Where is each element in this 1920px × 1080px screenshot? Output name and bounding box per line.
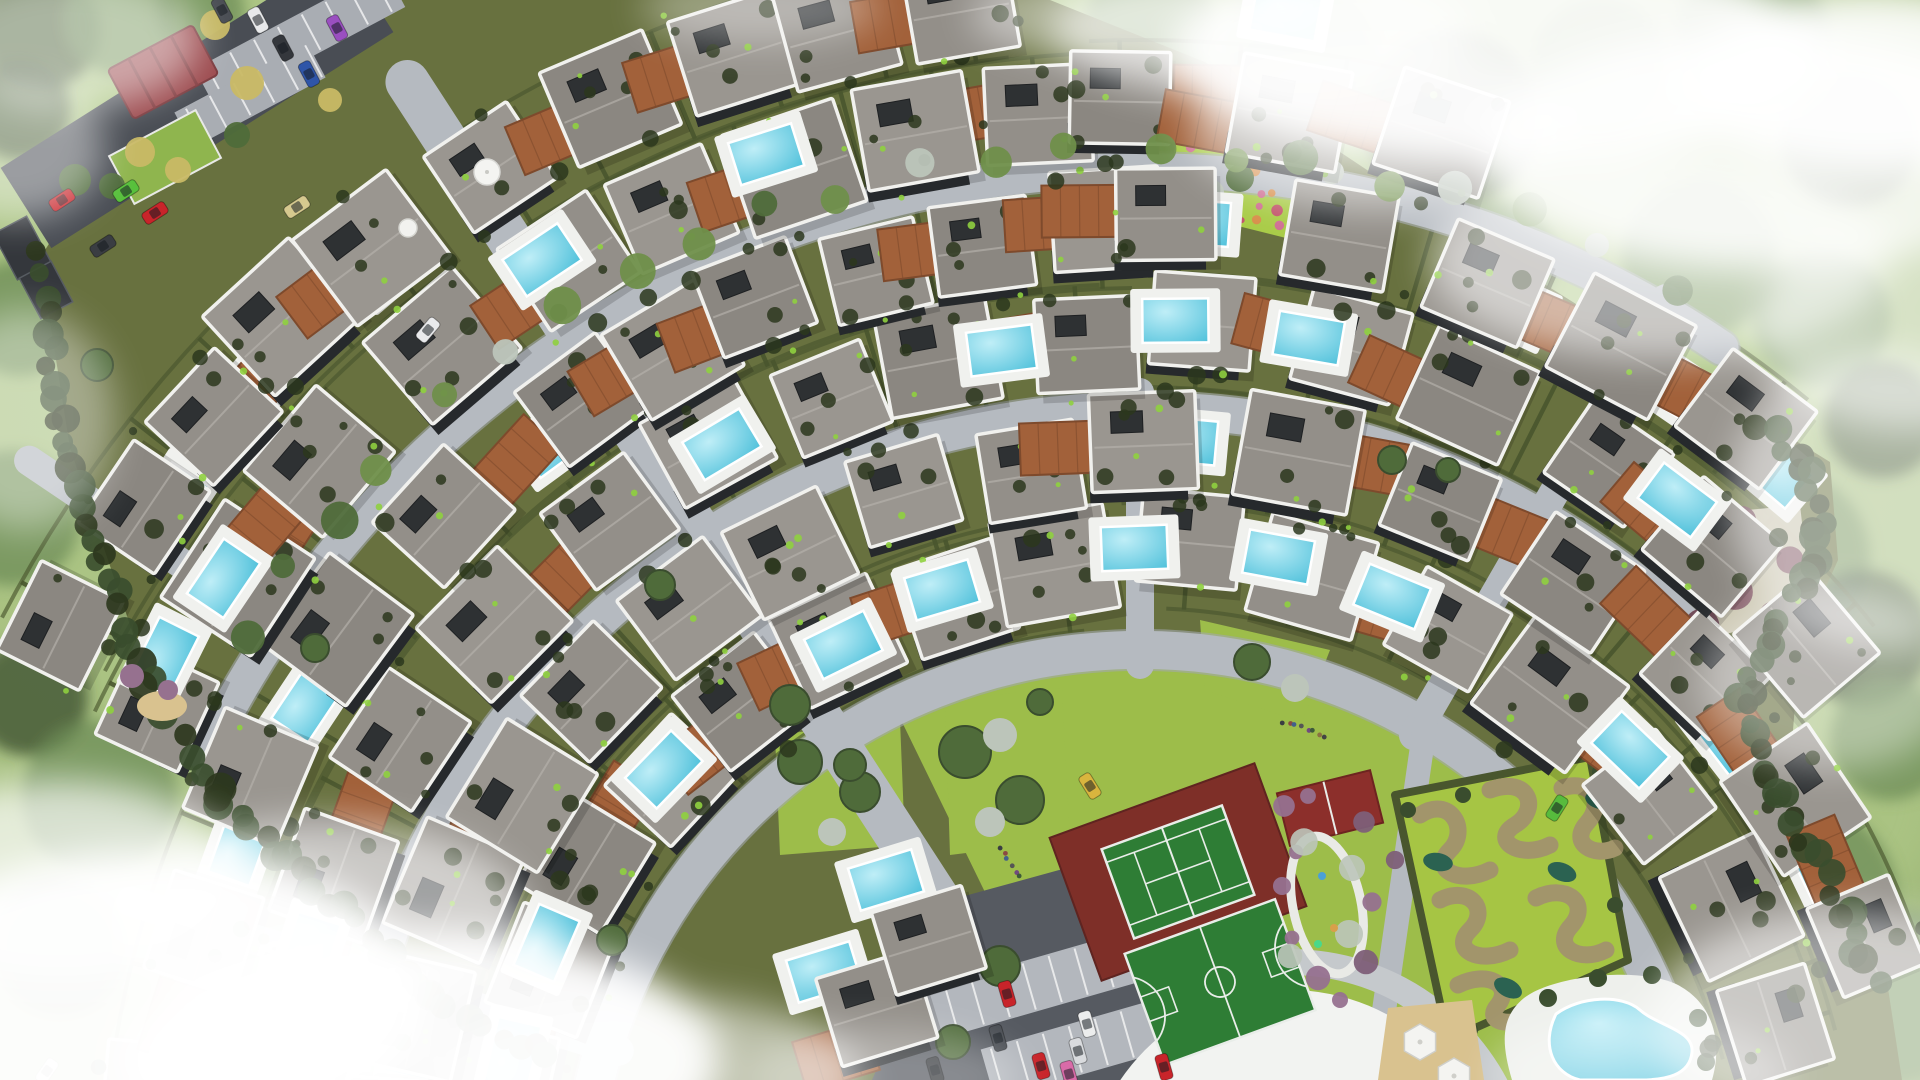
lawn-dot (1541, 577, 1548, 584)
lawn-dot (1589, 470, 1594, 475)
shrub (681, 271, 700, 290)
boundary-hedge (1818, 859, 1845, 886)
lawn-dot (577, 73, 582, 78)
lawn-dot (736, 713, 742, 719)
shrub (598, 265, 607, 274)
lawn-dot (899, 195, 905, 201)
shrub (966, 388, 984, 406)
lawn-dot (597, 244, 603, 250)
lawn-dot (1401, 673, 1408, 680)
lawn-dot (786, 541, 794, 549)
palm-tree (1400, 802, 1416, 818)
shrub (1691, 757, 1708, 774)
masterplan-svg (0, 0, 1920, 1080)
lawn-dot (1219, 370, 1227, 378)
yellow-tree (318, 88, 342, 112)
shrub (1508, 702, 1517, 711)
shrub (1280, 469, 1294, 483)
lawn-dot (898, 512, 905, 519)
shrub (336, 190, 350, 204)
lawn-dot (1370, 278, 1377, 285)
flower-clump (1252, 215, 1261, 224)
lawn-dot (883, 317, 888, 322)
lawn-dot (790, 347, 796, 353)
lawn-dot (1284, 601, 1290, 607)
lawn-dot (722, 648, 728, 654)
shrub (1585, 603, 1594, 612)
boundary-hedge (26, 241, 46, 261)
lawn-dot (1364, 328, 1372, 336)
lawn-dot (1102, 94, 1109, 101)
lawn-dot (1648, 834, 1653, 839)
shrub (674, 195, 684, 205)
shrub (1187, 366, 1206, 385)
shrub (659, 187, 668, 196)
boundary-hedge (93, 542, 116, 565)
shrub (1023, 529, 1041, 547)
shrub (1513, 370, 1529, 386)
shrub (339, 422, 347, 430)
shrub (459, 563, 476, 580)
shrub (723, 662, 732, 671)
umbrella-pole (485, 170, 489, 174)
shrub (954, 260, 964, 270)
boundary-hedge (1819, 885, 1839, 905)
pool-water (1142, 298, 1208, 343)
shrub (1067, 80, 1085, 98)
lawn-dot (365, 700, 372, 707)
shrub (871, 443, 886, 458)
shrub (547, 819, 560, 832)
shrub (1716, 444, 1733, 461)
street-tree (981, 147, 1012, 178)
shrub (232, 338, 244, 350)
gray-roof (1232, 389, 1365, 515)
shrub (821, 393, 836, 408)
shrub (1097, 468, 1114, 485)
site-tree (1436, 458, 1460, 482)
lawn-dot (420, 387, 426, 393)
shrub (309, 808, 320, 819)
house (849, 70, 986, 203)
street-tree (544, 287, 582, 325)
lawn-dot (63, 688, 69, 694)
purple-tree (120, 664, 144, 688)
shrub (206, 371, 221, 386)
roof-ridge (1120, 218, 1212, 219)
shrub (700, 679, 715, 694)
palm-tree (1455, 787, 1471, 803)
gray-roof (1034, 295, 1140, 393)
shrub (147, 575, 156, 584)
shrub (743, 243, 755, 255)
shrub (1036, 65, 1049, 78)
shrub (494, 180, 509, 195)
shrub (1690, 653, 1703, 666)
purple-bush (1300, 788, 1316, 804)
shrub (460, 317, 478, 335)
pedestrian (1004, 856, 1009, 861)
shrub (857, 462, 874, 479)
boundary-hedge (203, 784, 231, 812)
lawn-dot (1197, 584, 1204, 591)
lawn-dot (1113, 210, 1119, 216)
rooftop-unit (1005, 84, 1038, 107)
shrub (544, 515, 559, 530)
wood-deck (1019, 421, 1097, 476)
shrub (421, 790, 430, 799)
lawn-dot (106, 706, 114, 714)
lawn-dot (679, 227, 684, 232)
shrub (319, 486, 335, 502)
house (1228, 389, 1370, 527)
wood-deck (1041, 185, 1117, 238)
shrub (266, 584, 277, 595)
rooftop-unit (950, 218, 982, 241)
lawn-dot (1496, 430, 1501, 435)
shrub (550, 162, 568, 180)
house (1086, 390, 1204, 503)
shrub (1111, 253, 1122, 264)
lawn-dot (1211, 483, 1217, 489)
shrub (844, 76, 857, 89)
shrub (640, 289, 657, 306)
shrub (258, 378, 274, 394)
lawn-dot (1072, 68, 1079, 75)
purple-bush (1353, 811, 1375, 833)
lawn-dot (199, 474, 207, 482)
lawn-dot (462, 174, 469, 181)
site-tree (770, 685, 810, 725)
shrub (467, 784, 483, 800)
pedestrian (998, 846, 1003, 851)
lawn-dot (376, 504, 383, 511)
shrub (208, 691, 223, 706)
house-lot (1034, 295, 1146, 404)
shrub (1614, 813, 1625, 824)
shrub (1495, 741, 1512, 758)
shrub (1775, 845, 1788, 858)
street-tree (905, 148, 934, 177)
masterplan-render: Aerial masterplan render — circular resi… (0, 0, 1920, 1080)
lawn-dot (706, 367, 712, 373)
shrub (1400, 290, 1409, 299)
street-tree (432, 382, 457, 407)
pedestrian (1280, 721, 1285, 726)
pool-water (966, 324, 1037, 376)
shrub (1423, 642, 1441, 660)
shrub (478, 230, 491, 243)
lawn-dot (179, 538, 186, 545)
shrub (556, 701, 574, 719)
shrub (792, 567, 806, 581)
lawn-dot (237, 725, 243, 731)
white-tree (1339, 855, 1365, 881)
street-tree (821, 185, 850, 214)
shrub (1173, 499, 1187, 513)
white-tree (983, 718, 1017, 752)
pedestrian (1017, 874, 1022, 879)
shrub (582, 885, 599, 902)
lawn-dot (1626, 369, 1632, 375)
shrub (395, 657, 404, 666)
shrub (817, 584, 826, 593)
lawn-dot (1468, 340, 1473, 345)
house (1034, 295, 1146, 404)
shrub (1603, 521, 1611, 529)
shrub (681, 405, 691, 415)
site-tree (645, 570, 675, 600)
shrub (382, 612, 392, 622)
lawn-dot (1754, 810, 1759, 815)
shrub (1156, 382, 1173, 399)
purple-bush (1273, 795, 1295, 817)
shrub (590, 480, 605, 495)
shrub (765, 559, 781, 575)
lawn-dot (1564, 694, 1570, 700)
shrub (1065, 529, 1075, 539)
lawn-dot (1017, 292, 1023, 298)
boundary-hedge (1778, 810, 1804, 836)
rooftop-unit (1136, 185, 1166, 205)
lawn-dot (492, 601, 498, 607)
lawn-dot (968, 221, 976, 229)
white-tree (1281, 674, 1309, 702)
lawn-dot (1069, 613, 1077, 621)
shrub (375, 513, 394, 532)
pedestrian (1322, 735, 1327, 740)
pool-water (1101, 525, 1169, 571)
shrub (1329, 524, 1337, 532)
shrub (842, 309, 858, 325)
palm-tree (1589, 969, 1607, 987)
swimming-pool (953, 313, 1051, 388)
lawn-dot (1754, 879, 1760, 885)
shrub (921, 468, 937, 484)
shrub (1671, 676, 1689, 694)
shrub (979, 120, 988, 129)
shrub (800, 50, 813, 63)
lawn-dot (631, 414, 638, 421)
shrub (1451, 536, 1470, 555)
shrub (553, 651, 564, 662)
shrub (369, 218, 379, 228)
purple-bush (1285, 931, 1300, 946)
play-equipment (1318, 872, 1326, 880)
shrub (801, 73, 811, 83)
shrub (706, 44, 720, 58)
lawn-dot (312, 576, 319, 583)
swimming-pool (1088, 514, 1180, 581)
pedestrian (1310, 728, 1315, 733)
umbrella-pole (1418, 1040, 1423, 1045)
yellow-tree (230, 66, 264, 100)
shrub (1346, 532, 1355, 541)
shrub (565, 849, 577, 861)
shrub (360, 766, 371, 777)
pedestrian (1299, 724, 1304, 729)
shrub (287, 378, 304, 395)
flower-clump (1275, 221, 1285, 231)
site-tree (834, 749, 866, 781)
shrub (765, 337, 782, 354)
white-tree (818, 818, 846, 846)
street-tree (360, 455, 392, 487)
lawn-dot (744, 43, 751, 50)
shrub (405, 380, 421, 396)
shrub (996, 297, 1010, 311)
shrub (948, 312, 960, 324)
street-tree (1050, 133, 1077, 160)
lawn-dot (631, 490, 638, 497)
lawn-dot (1408, 485, 1416, 493)
purple-bush (1332, 992, 1348, 1008)
yellow-tree (125, 137, 155, 167)
shrub (1159, 470, 1175, 486)
shrub (947, 631, 957, 641)
swimming-pool (1130, 288, 1221, 353)
shrub (644, 882, 653, 891)
lawn-dot (1689, 787, 1695, 793)
boundary-hedge (1773, 782, 1799, 808)
shrub (416, 707, 425, 716)
shrub (1756, 891, 1776, 911)
shrub (290, 415, 302, 427)
shrub (1431, 511, 1448, 528)
lawn-dot (620, 868, 627, 875)
lawn-dot (1155, 405, 1163, 413)
lawn-dot (1071, 356, 1077, 362)
shrub (908, 115, 921, 128)
play-equipment (1330, 924, 1338, 932)
lawn-dot (690, 615, 697, 622)
shrub (900, 344, 912, 356)
shrub (254, 351, 265, 362)
lawn-dot (601, 740, 608, 747)
shrub (844, 681, 854, 691)
lawn-dot (1404, 494, 1411, 501)
site-tree (301, 634, 329, 662)
lawn-dot (941, 58, 947, 64)
lawn-dot (546, 848, 552, 854)
shrub (1536, 640, 1550, 654)
shrub (1709, 901, 1725, 917)
lawn-dot (553, 784, 560, 791)
palm-tree (1539, 989, 1557, 1007)
site-tree (1378, 446, 1406, 474)
lawn-dot (436, 512, 443, 519)
shrub (843, 448, 852, 457)
shrub (373, 634, 384, 645)
shrub (475, 108, 488, 121)
boundary-hedge (30, 263, 49, 282)
purple-bush (1386, 851, 1404, 869)
boundary-hedge (106, 593, 128, 615)
lawn-dot (289, 405, 294, 410)
lawn-dot (1294, 496, 1300, 502)
shrub (1109, 154, 1124, 169)
lawn-dot (833, 434, 838, 439)
lawn-dot (572, 123, 578, 129)
lawn-dot (381, 277, 387, 283)
shrub (1576, 573, 1594, 591)
shrub (584, 86, 596, 98)
lawn-dot (1570, 486, 1578, 494)
green-tree (1027, 689, 1053, 715)
palm-tree (1643, 966, 1661, 984)
lawn-dot (717, 679, 723, 685)
flower-clump (1256, 203, 1263, 210)
shrub (799, 324, 810, 335)
lawn-dot (553, 339, 559, 345)
shrub (946, 242, 961, 257)
lawn-dot (792, 299, 797, 304)
lawn-dot (695, 802, 703, 810)
shrub (449, 280, 457, 288)
lawn-dot (1507, 714, 1515, 722)
shrub (355, 260, 367, 272)
street-tree (683, 227, 716, 260)
white-tree (1335, 920, 1363, 948)
boundary-hedge (174, 724, 196, 746)
lawn-dot (1670, 651, 1675, 656)
lawn-dot (1047, 532, 1054, 539)
lawn-dot (797, 619, 803, 625)
shrub (420, 752, 433, 765)
shrub (780, 740, 797, 757)
pedestrian (1010, 863, 1015, 868)
purple-bush (1362, 892, 1381, 911)
shrub (1335, 410, 1354, 429)
shrub (869, 135, 878, 144)
lawn-dot (1069, 401, 1074, 406)
lawn-dot (1425, 675, 1430, 680)
lawn-dot (794, 534, 802, 542)
shrub (899, 295, 914, 310)
street-tree (493, 339, 518, 364)
shrub (559, 499, 575, 515)
lawn-dot (880, 146, 886, 152)
lawn-dot (1685, 583, 1692, 590)
shrub (1377, 301, 1395, 319)
cloud (1190, 50, 1570, 210)
shrub (436, 474, 446, 484)
lawn-dot (370, 443, 377, 450)
lawn-dot (1056, 482, 1061, 487)
shrub (620, 327, 630, 337)
shrub (1120, 243, 1128, 251)
shrub (535, 630, 550, 645)
pedestrian (1317, 733, 1322, 738)
white-tree (975, 807, 1005, 837)
shrub (1334, 302, 1353, 321)
lawn-dot (1319, 518, 1326, 525)
shrub (767, 307, 783, 323)
lawn-dot (1198, 226, 1205, 233)
shrub (1013, 480, 1026, 493)
play-equipment (1314, 940, 1322, 948)
green-tree (224, 122, 250, 148)
lawn-dot (508, 675, 514, 681)
shrub (129, 427, 137, 435)
street-tree (1146, 133, 1177, 164)
green-tree (1234, 644, 1270, 680)
lawn-dot (856, 353, 862, 359)
shrub (860, 357, 876, 373)
flower-clump (1271, 205, 1283, 217)
shrub (642, 130, 659, 147)
shrub (1033, 586, 1045, 598)
